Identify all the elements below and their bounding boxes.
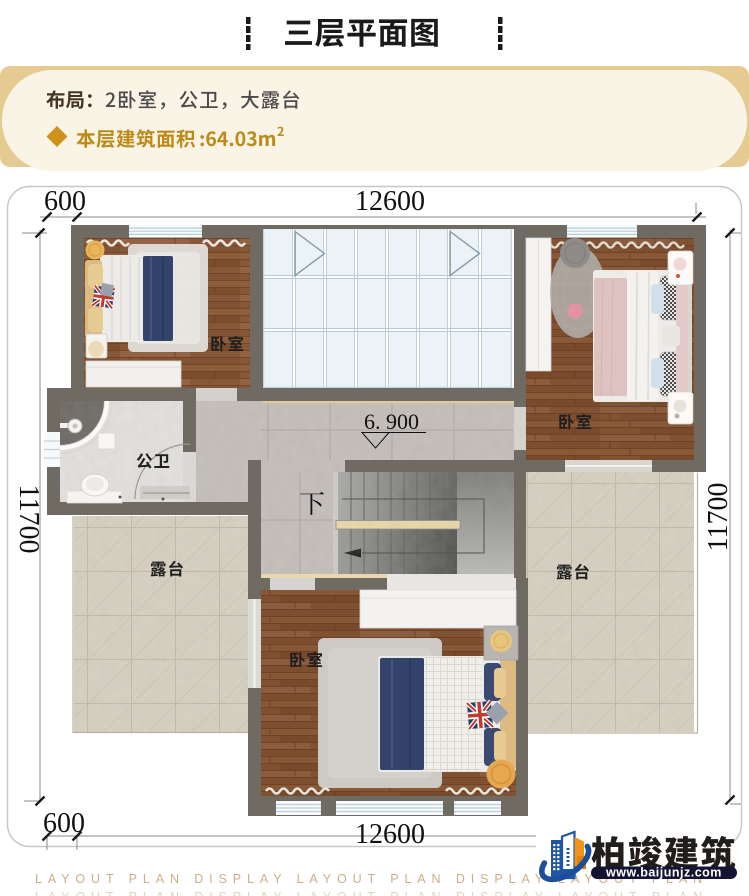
svg-text:11700: 11700 <box>13 485 44 554</box>
svg-text:www.baijunjz.com: www.baijunjz.com <box>605 866 722 880</box>
svg-text:600: 600 <box>44 186 86 217</box>
svg-text:LAYOUT PLAN DISPLAY LAYOUT PLA: LAYOUT PLAN DISPLAY LAYOUT PLAN DISPLAY … <box>35 890 708 896</box>
svg-text:12600: 12600 <box>355 819 425 850</box>
svg-text:11700: 11700 <box>703 483 734 552</box>
svg-text:6. 900: 6. 900 <box>364 409 419 434</box>
svg-text:12600: 12600 <box>355 186 425 217</box>
svg-text:600: 600 <box>43 808 85 839</box>
